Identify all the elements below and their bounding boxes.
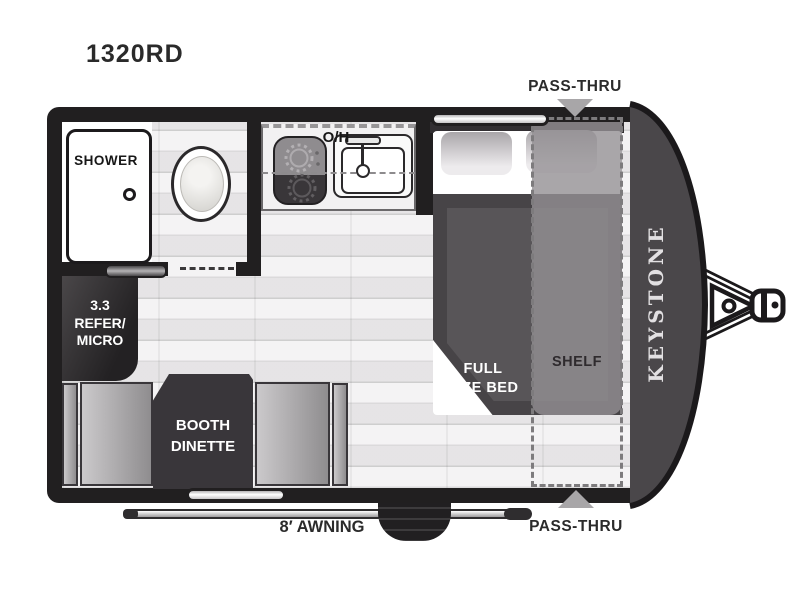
toilet-bowl — [180, 156, 224, 212]
bed-label: FULL SIZE BED — [433, 360, 533, 398]
tongue-jack-icon — [724, 301, 735, 312]
window-front-top — [431, 112, 549, 126]
bathroom-door-opening-dashes — [180, 267, 234, 270]
hitch-triangle — [712, 286, 753, 326]
stove-cooktop — [273, 136, 327, 205]
shower-drain-icon — [123, 188, 136, 201]
faucet-stem — [361, 144, 364, 166]
bathroom-pocket-door — [105, 264, 167, 278]
bathroom-divider-wall — [247, 122, 261, 271]
pillow-left — [441, 132, 512, 175]
hitch-coupler — [752, 291, 783, 320]
overhead-cabinet-label: O/H — [316, 129, 356, 146]
dinette-seat-back-left — [62, 383, 78, 486]
faucet-knob — [356, 164, 370, 178]
pass-thru-bottom-arrow-icon — [558, 490, 594, 508]
pass-thru-bottom-label: PASS-THRU — [506, 518, 646, 536]
floorplan-canvas: 1320RD PASS-THRU KEYSTONE SHOWER — [0, 0, 800, 600]
overhead-cabinet-dashed-line — [262, 172, 415, 174]
dinette-seat-left — [80, 382, 153, 486]
sink-basin — [341, 147, 405, 194]
awning-label: 8′ AWNING — [252, 518, 392, 537]
dinette-seat-back-right — [332, 383, 348, 486]
hitch-a-frame — [655, 248, 783, 360]
pass-thru-storage-outline — [531, 117, 623, 487]
pass-thru-top-arrow-icon — [557, 99, 593, 117]
shower-label: SHOWER — [66, 153, 146, 168]
dinette-seat-right — [255, 382, 330, 486]
kitchen-bed-partition-wall — [416, 122, 433, 215]
brand-label: KEYSTONE — [643, 203, 669, 403]
awning-end-cap-left — [123, 509, 138, 519]
refrigerator-label: 3.3 REFER/ MICRO — [62, 297, 138, 350]
dinette-label: BOOTH DINETTE — [153, 415, 253, 457]
bathroom-wall-stub — [236, 262, 261, 276]
pass-thru-top-label: PASS-THRU — [505, 78, 645, 96]
shower-pan — [66, 129, 152, 264]
window-dinette-bottom — [186, 488, 286, 502]
model-number: 1320RD — [86, 40, 184, 69]
